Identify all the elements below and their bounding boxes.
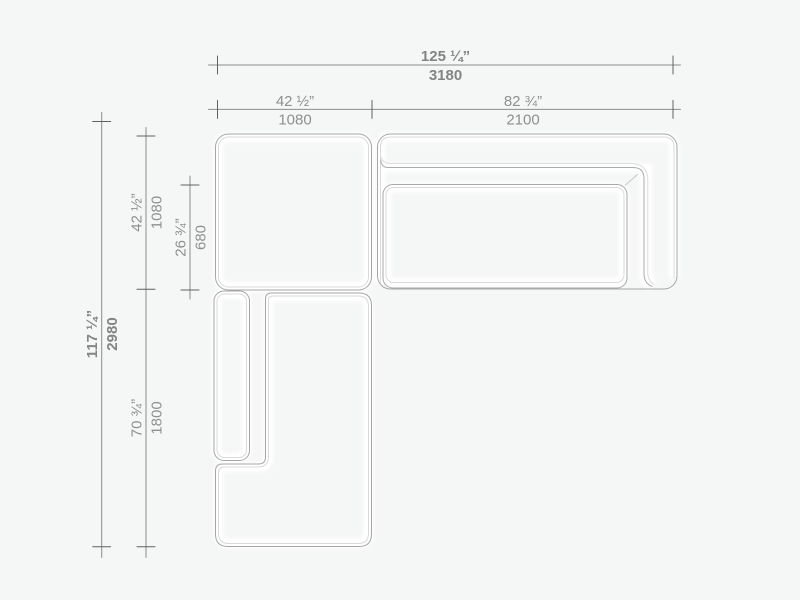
svg-text:42 ½”: 42 ½” [276,93,314,110]
svg-text:117 ¼”: 117 ¼” [84,310,101,358]
svg-text:680: 680 [193,225,210,250]
svg-text:42 ½”: 42 ½” [129,193,146,231]
svg-text:1800: 1800 [149,401,166,434]
svg-text:1080: 1080 [149,196,166,229]
svg-text:125 ¼”: 125 ¼” [421,48,470,65]
svg-text:1080: 1080 [278,111,311,128]
svg-text:70 ¾”: 70 ¾” [129,399,146,437]
svg-text:3180: 3180 [429,67,462,84]
svg-text:2980: 2980 [104,317,121,350]
svg-text:82 ¾”: 82 ¾” [504,93,542,110]
svg-text:2100: 2100 [506,111,539,128]
svg-text:26 ¾”: 26 ¾” [173,218,190,256]
